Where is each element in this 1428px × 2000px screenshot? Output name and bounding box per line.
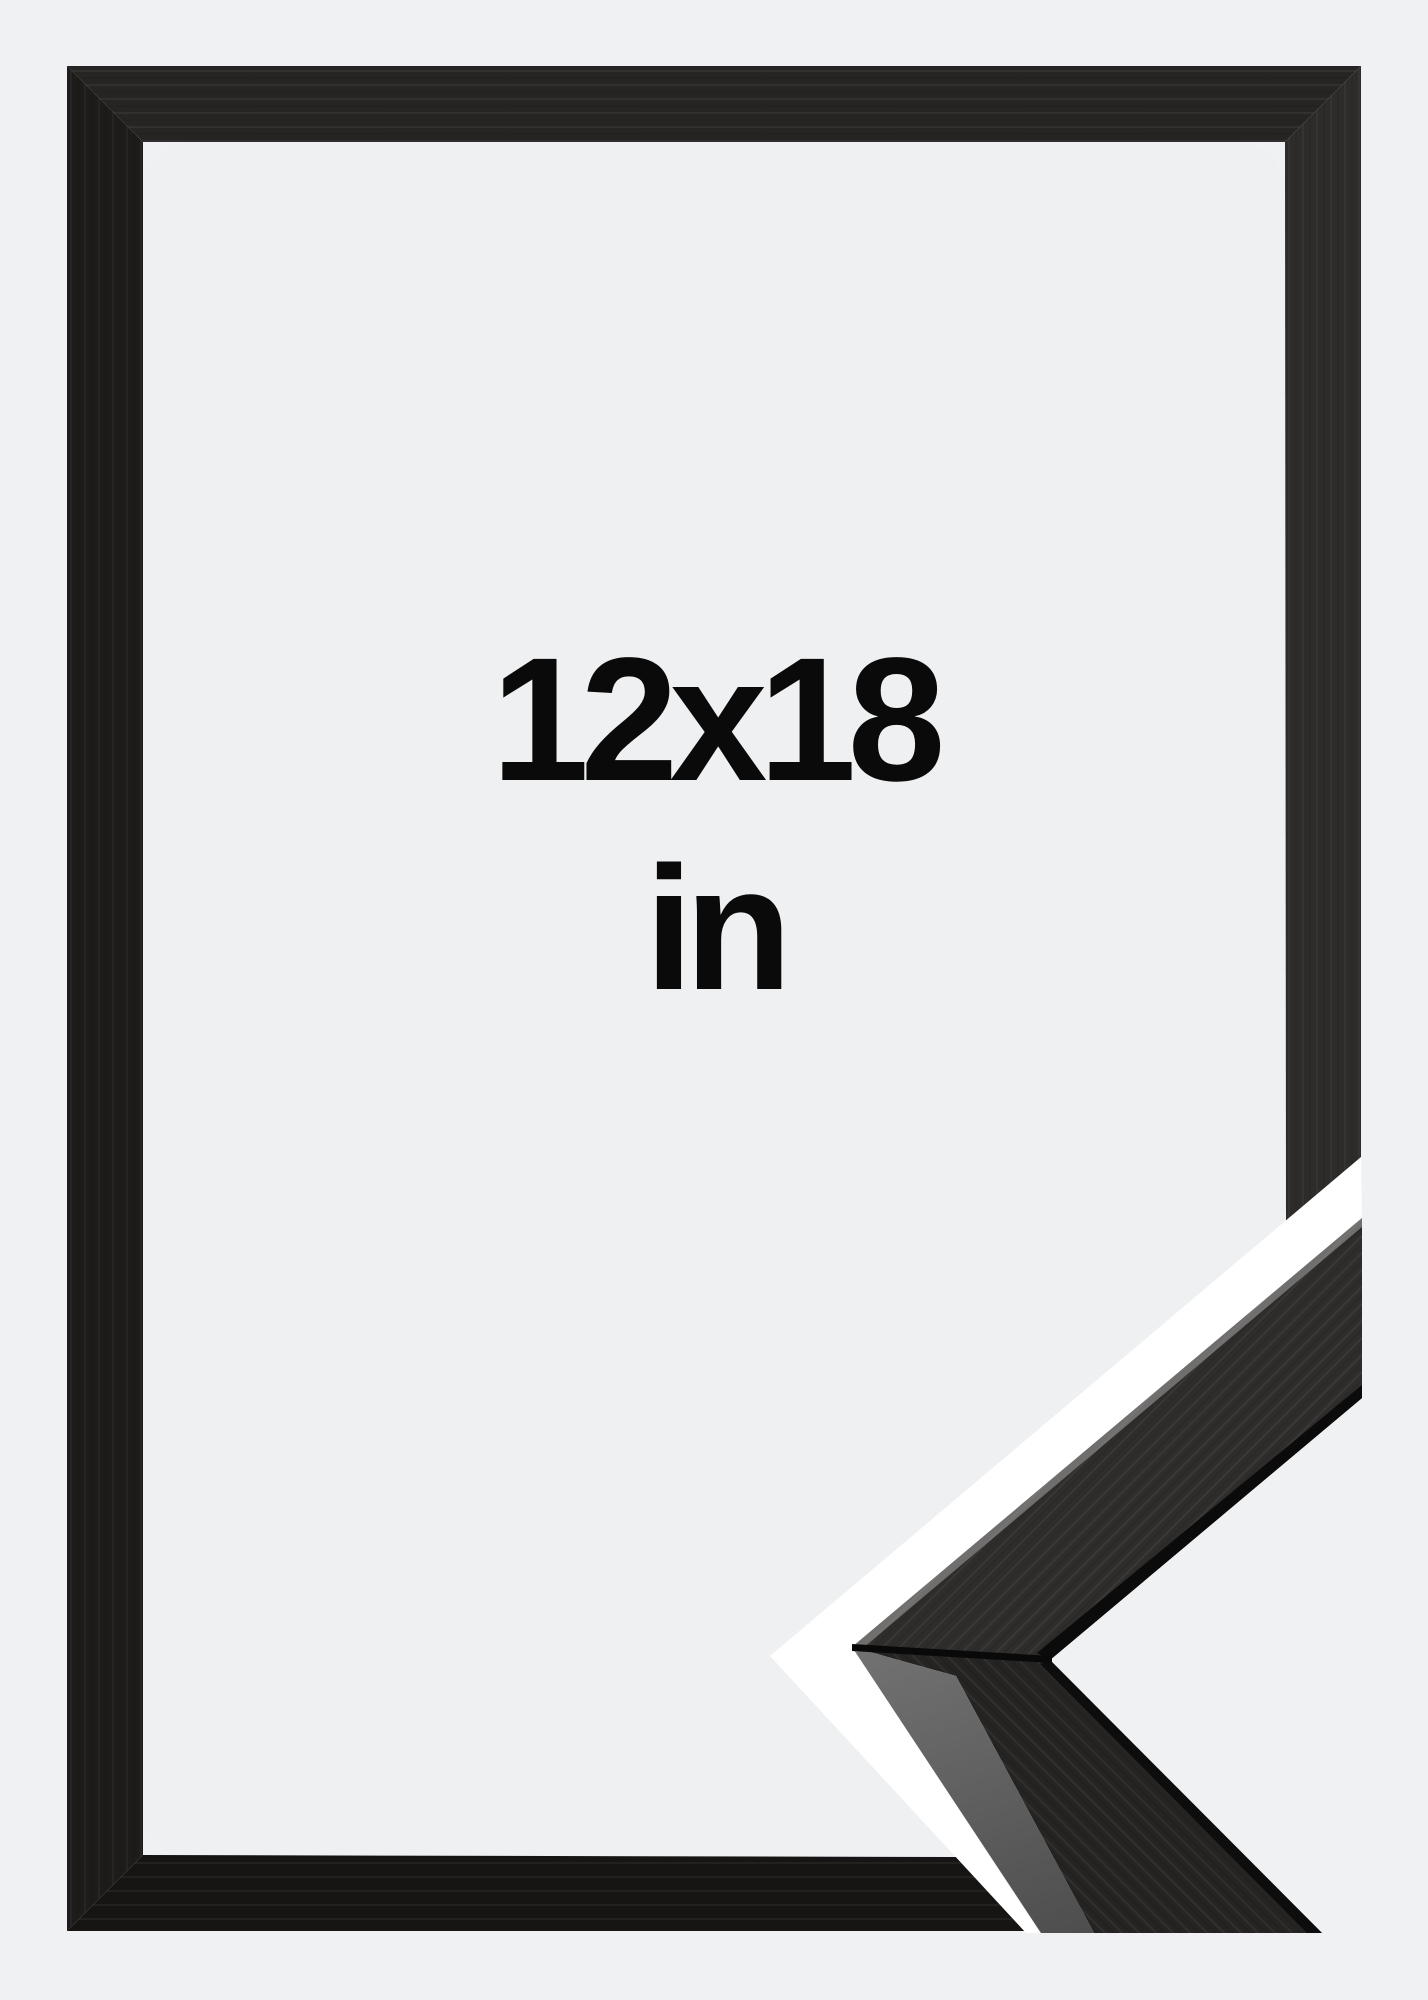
product-photo: 12x18 in	[0, 0, 1428, 2000]
size-label: 12x18	[143, 632, 1285, 808]
unit-label: in	[143, 841, 1285, 1017]
